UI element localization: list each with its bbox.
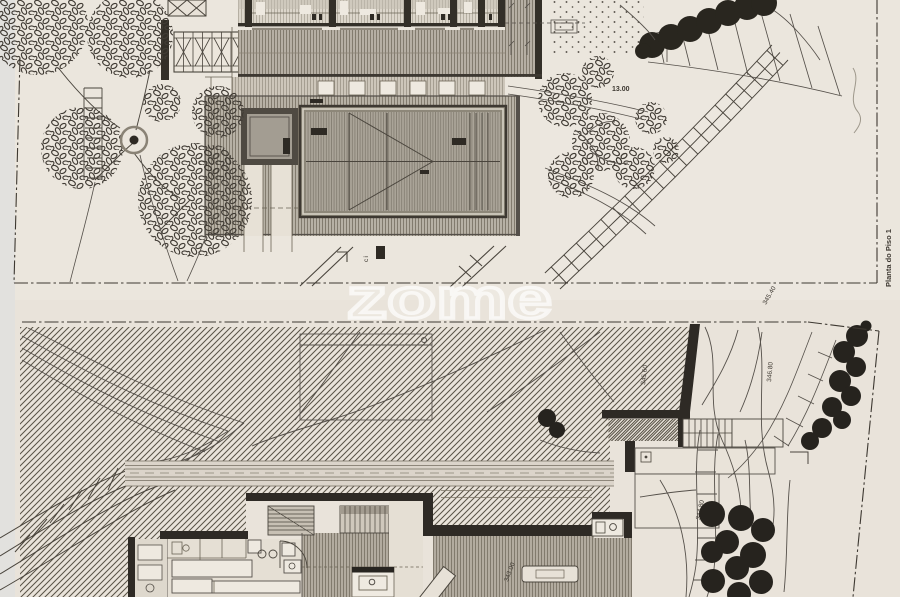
- svg-text:Planta do Piso 1: Planta do Piso 1: [884, 229, 893, 287]
- svg-text:13.00: 13.00: [612, 86, 630, 93]
- svg-text:c i: c i: [363, 256, 370, 262]
- svg-text:zome: zome: [347, 267, 552, 331]
